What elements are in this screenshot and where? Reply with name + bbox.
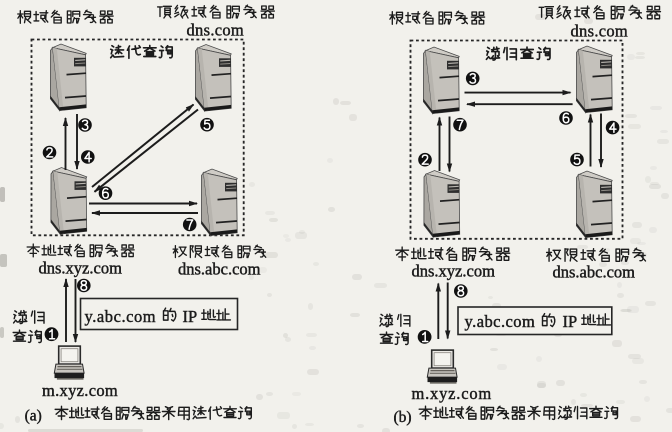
svg-text:y.abc.com: y.abc.com [85, 307, 157, 326]
svg-text:dns.xyz.com: dns.xyz.com [412, 262, 496, 281]
svg-text:IP: IP [183, 307, 198, 326]
svg-text:m.xyz.com: m.xyz.com [412, 384, 493, 403]
svg-text:dns.com: dns.com [571, 22, 629, 41]
svg-text:y.abc.com: y.abc.com [465, 312, 536, 331]
svg-text:dns.com: dns.com [187, 21, 245, 40]
svg-text:IP: IP [563, 312, 578, 331]
svg-text:(b): (b) [394, 409, 412, 426]
svg-text:dns.abc.com: dns.abc.com [178, 260, 261, 279]
svg-text:m.xyz.com: m.xyz.com [42, 381, 118, 400]
svg-text:dns.xyz.com: dns.xyz.com [39, 259, 123, 278]
svg-text:dns.abc.com: dns.abc.com [553, 263, 636, 282]
svg-text:(a): (a) [25, 408, 42, 425]
